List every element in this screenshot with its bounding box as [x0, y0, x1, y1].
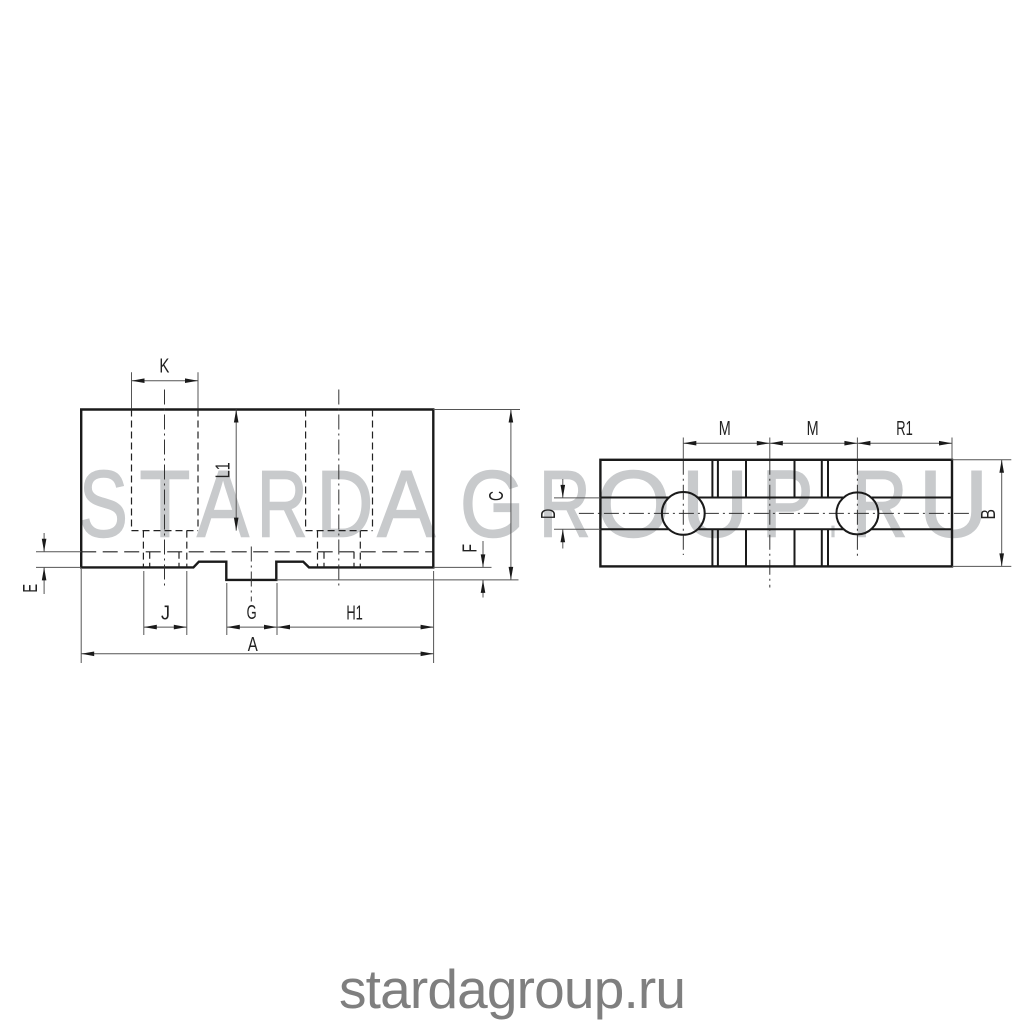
svg-text:K: K — [159, 355, 169, 377]
svg-text:O: O — [597, 452, 671, 558]
svg-text:R1: R1 — [896, 418, 913, 440]
svg-text:.: . — [829, 452, 837, 558]
svg-text:U: U — [682, 452, 749, 558]
svg-text:A: A — [377, 452, 436, 558]
svg-text:H1: H1 — [346, 603, 363, 625]
svg-text:L1: L1 — [212, 462, 234, 478]
svg-text:R: R — [852, 452, 908, 558]
svg-text:D: D — [538, 509, 560, 520]
svg-text:M: M — [719, 418, 731, 440]
svg-text:C: C — [486, 491, 508, 501]
svg-text:G: G — [460, 452, 525, 558]
svg-text:E: E — [20, 584, 42, 593]
svg-text:F: F — [460, 544, 482, 553]
svg-text:B: B — [978, 509, 1000, 520]
svg-text:stardagroup.ru: stardagroup.ru — [339, 958, 686, 1020]
svg-text:S: S — [79, 452, 128, 558]
svg-text:A: A — [248, 634, 258, 656]
svg-text:M: M — [807, 418, 819, 440]
svg-text:D: D — [316, 452, 373, 558]
svg-text:R: R — [257, 452, 308, 558]
svg-text:J: J — [161, 602, 170, 624]
svg-text:G: G — [247, 602, 257, 624]
svg-text:U: U — [919, 452, 989, 558]
